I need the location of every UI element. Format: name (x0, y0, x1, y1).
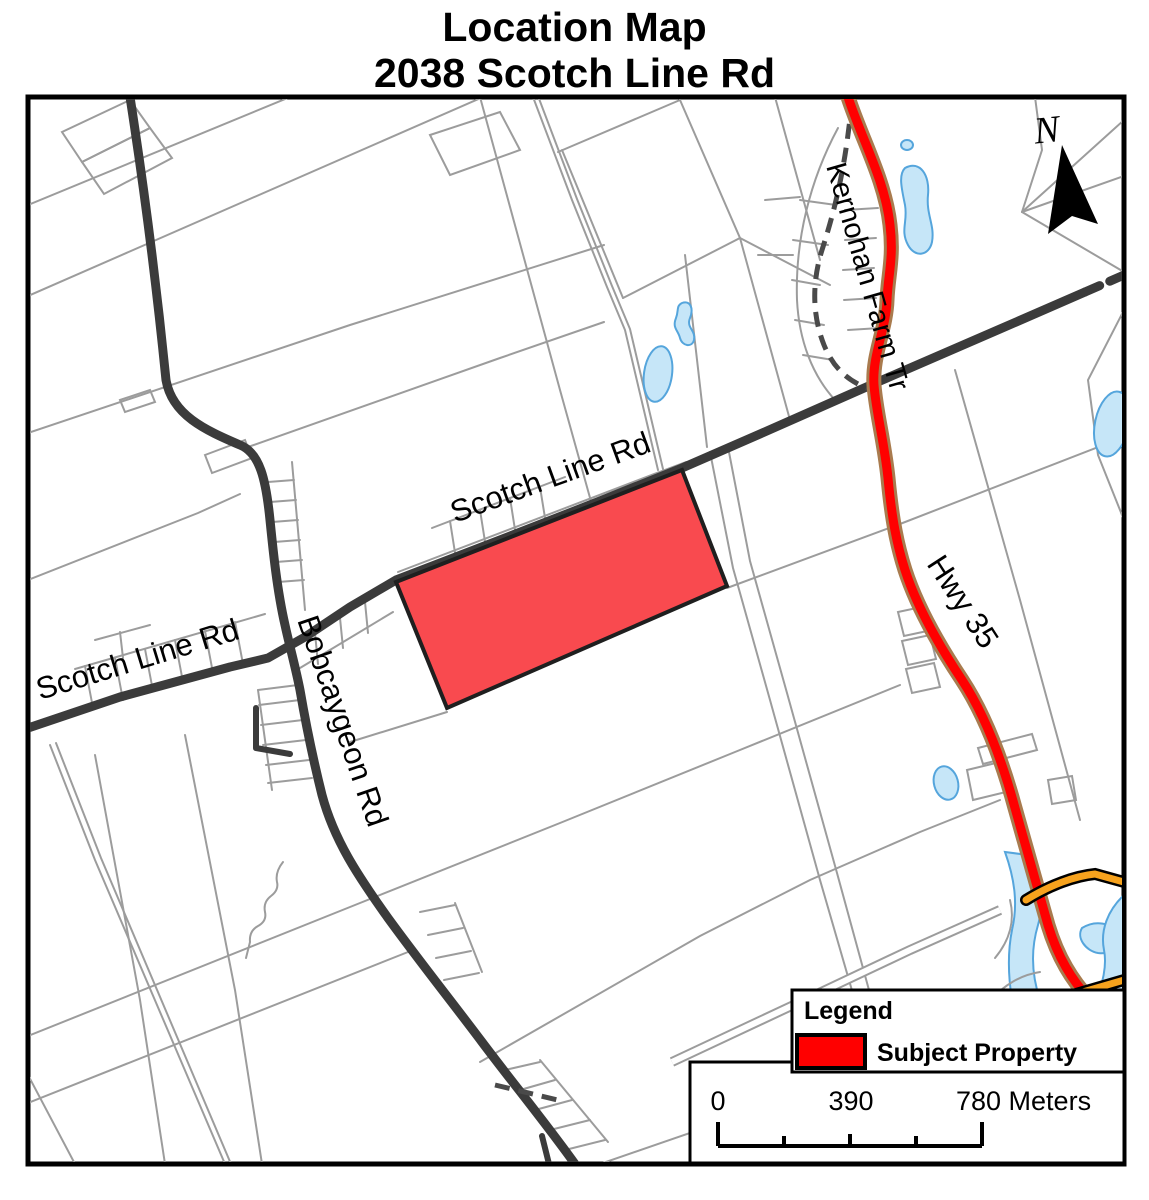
legend: Legend Subject Property (792, 990, 1124, 1072)
pond-kernohan-small (901, 140, 913, 150)
scale-label-390: 390 (828, 1086, 873, 1116)
location-map-page: Location Map 2038 Scotch Line Rd (0, 0, 1149, 1200)
scale-bar: 0 390 780 Meters (690, 1062, 1124, 1163)
pond-kernohan (901, 166, 933, 254)
map-canvas: Scotch Line Rd Scotch Line Rd Bobcaygeon… (0, 0, 1149, 1200)
legend-item-subject-property: Subject Property (877, 1039, 1077, 1067)
legend-swatch-subject-property (797, 1035, 865, 1068)
scale-label-780-meters: 780 Meters (956, 1086, 1091, 1116)
legend-title: Legend (804, 997, 893, 1025)
scale-label-0: 0 (710, 1086, 725, 1116)
